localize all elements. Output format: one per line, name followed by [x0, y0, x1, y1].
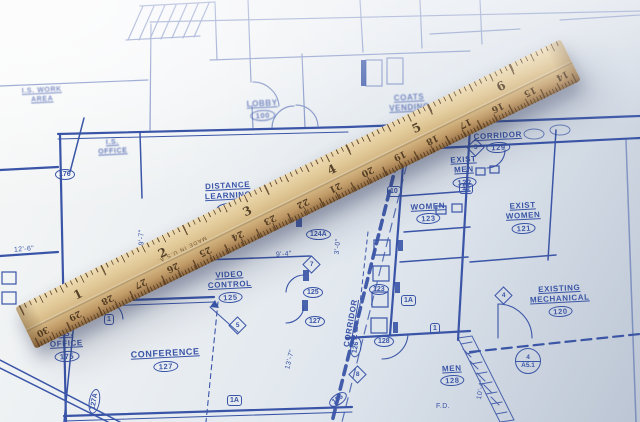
room-number: 121: [511, 222, 536, 234]
tag-bubble: 124A: [306, 229, 331, 240]
ruler-inch-number: 1: [71, 286, 85, 302]
section-number: 4: [516, 354, 540, 362]
tag-bubble: 7: [305, 258, 318, 271]
tag-bubble: 1A: [401, 295, 416, 306]
room-name: OFFICE: [50, 339, 83, 351]
room-number: 125: [218, 291, 243, 303]
tag-bubble: 5: [231, 319, 244, 332]
room-label-video-control: VIDEO CONTROL 125: [207, 269, 252, 304]
tag-bubble: 123: [369, 284, 389, 295]
room-number: 100: [250, 110, 275, 122]
tag-bubble: 127: [305, 316, 325, 327]
tag-bubble: 176: [55, 169, 75, 180]
ruler-inch-number: 6: [494, 78, 508, 94]
room-number: 175: [55, 350, 80, 362]
room-name: LOBBY: [246, 98, 278, 110]
dimension-text: 12'-6": [14, 245, 35, 253]
room-number: 129: [486, 142, 511, 154]
ruler-inch-number: 5: [410, 120, 424, 136]
room-name: MEN: [451, 165, 478, 177]
tag-bubble: 125: [303, 287, 323, 298]
room-name: CONFERENCE: [130, 346, 200, 361]
dimension-text: 3'-0": [334, 238, 342, 255]
room-label-women: WOMEN 123: [410, 201, 446, 226]
sheet-number: A5.1: [521, 362, 535, 369]
section-marker: 4 A5.1: [515, 348, 541, 374]
tag-bubble: 10: [387, 186, 401, 197]
room-label-existing-mechanical: EXISTING MECHANICAL 120: [529, 282, 590, 318]
room-label-men: MEN 128: [439, 363, 464, 387]
dimension-text: 9'-4": [276, 250, 292, 258]
room-number: 127: [153, 360, 178, 372]
room-label-exist-women: EXIST WOMEN 121: [505, 200, 541, 235]
room-name: CONTROL: [208, 279, 252, 292]
room-label-lobby: LOBBY 100: [246, 98, 278, 122]
tag-bubble: 5: [469, 141, 482, 154]
room-number: 128: [440, 375, 465, 387]
tag-bubble: 10: [459, 183, 473, 194]
room-name: MECHANICAL: [530, 293, 590, 307]
room-name: WOMEN: [410, 201, 445, 213]
room-label-is-work-area: I.S. WORK AREA: [22, 85, 63, 105]
tag-bubble: 4: [497, 289, 510, 302]
tag-bubble: 1: [104, 314, 114, 325]
ruler-inch-number: 3: [240, 203, 254, 219]
tag-bubble: 128: [374, 336, 394, 347]
room-number: 120: [548, 305, 573, 317]
room-label-is-office-left: I.S. OFFICE: [98, 137, 128, 157]
dimension-text: F.D.: [436, 403, 450, 410]
tag-bubble: 1A: [227, 395, 242, 406]
room-name: MEN: [439, 363, 464, 375]
ruler-inch-number: 4: [325, 161, 339, 177]
room-label-conference: CONFERENCE 127: [130, 346, 200, 374]
blueprint-photo: DISTANCE LEARNING 124 LOBBY 100 COATS VE…: [0, 0, 640, 422]
room-name: WOMEN: [506, 210, 541, 222]
tag-bubble: 8: [351, 368, 364, 381]
tag-bubble: 1: [430, 323, 440, 334]
room-name: OFFICE: [98, 146, 128, 157]
room-number: 123: [416, 213, 441, 225]
